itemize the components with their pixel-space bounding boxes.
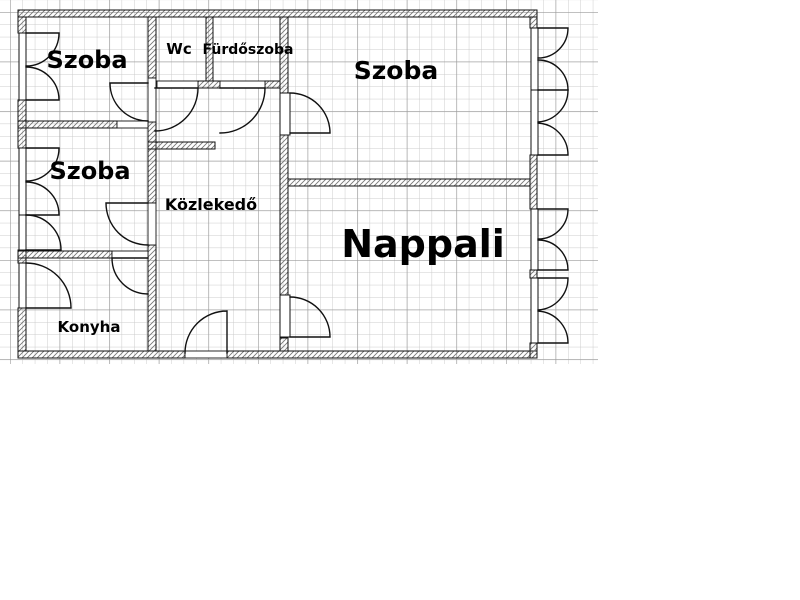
wall-corridor-left-1 bbox=[148, 17, 156, 78]
wall-outer-right-1 bbox=[530, 17, 537, 28]
wall-szoba1-szoba2 bbox=[18, 121, 117, 128]
opening-szoba1-door bbox=[148, 78, 156, 122]
wall-center-vertical-2 bbox=[280, 135, 288, 295]
wall-outer-left-1 bbox=[18, 17, 26, 33]
wall-outer-right-2 bbox=[530, 155, 537, 209]
window-frame-szoba2-b bbox=[19, 215, 26, 250]
opening-konyha-door bbox=[112, 251, 148, 258]
opening-szoba1-szoba2 bbox=[117, 121, 148, 128]
label-wc: Wc bbox=[166, 40, 191, 58]
wall-outer-right-3 bbox=[530, 270, 537, 278]
wall-wc-bottom-2 bbox=[198, 81, 220, 88]
label-szoba-top-left: Szoba bbox=[46, 46, 127, 74]
leaf-nappali-door bbox=[280, 295, 290, 337]
floor-plan-page: Szoba Szoba Wc Fürdőszoba Szoba Közleked… bbox=[0, 0, 800, 600]
opening-entrance-door bbox=[185, 351, 227, 358]
window-frame-szoba1 bbox=[19, 33, 26, 100]
opening-furdoszoba-door bbox=[220, 81, 265, 88]
window-frame-szoba3-a bbox=[531, 28, 538, 90]
window-frame-nappali-a bbox=[531, 209, 538, 270]
wall-furdo-bottom bbox=[265, 81, 280, 88]
window-frame-nappali-b bbox=[531, 278, 538, 343]
leaf-szoba3-door bbox=[280, 93, 290, 135]
wall-outer-top bbox=[18, 10, 537, 17]
label-szoba-top-right: Szoba bbox=[354, 56, 439, 85]
label-szoba-mid-left: Szoba bbox=[49, 157, 130, 185]
label-kozlekedo: Közlekedő bbox=[165, 195, 257, 214]
wall-szoba3-nappali bbox=[288, 179, 530, 186]
window-frame-konyha bbox=[19, 263, 26, 308]
label-nappali: Nappali bbox=[341, 222, 505, 266]
label-furdoszoba: Fürdőszoba bbox=[203, 42, 294, 58]
opening-szoba2-door bbox=[148, 203, 156, 245]
label-konyha: Konyha bbox=[58, 318, 121, 336]
wall-corridor-left-2 bbox=[148, 122, 156, 203]
wall-corridor-left-3 bbox=[148, 245, 156, 351]
wall-corridor-stub bbox=[148, 142, 215, 149]
wall-outer-right-4 bbox=[530, 343, 537, 358]
wall-outer-left-4 bbox=[18, 308, 26, 351]
wall-szoba2-konyha bbox=[18, 251, 112, 258]
window-frame-szoba3-b bbox=[531, 90, 538, 155]
floor-plan-canvas: Szoba Szoba Wc Fürdőszoba Szoba Közleked… bbox=[0, 0, 800, 600]
window-frame-szoba2-a bbox=[19, 148, 26, 215]
wall-center-vertical-3 bbox=[280, 338, 288, 351]
opening-wc-door bbox=[157, 81, 198, 88]
wall-outer-bottom-2 bbox=[227, 351, 537, 358]
wall-outer-bottom-1 bbox=[18, 351, 185, 358]
